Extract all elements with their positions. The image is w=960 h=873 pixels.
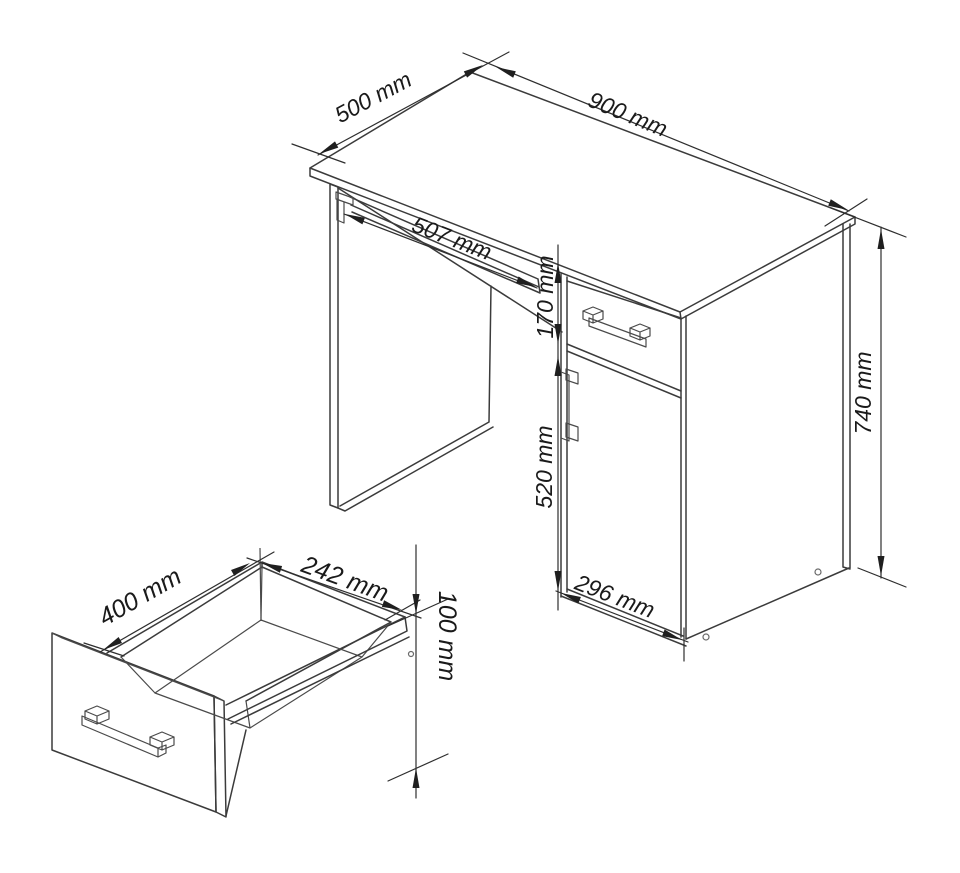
dim-label-drawer-front-height: 170 mm bbox=[532, 255, 558, 338]
left-panel-front-edge bbox=[330, 184, 338, 508]
cabinet-right-face-bottom bbox=[686, 568, 849, 639]
desk-top-surface bbox=[310, 72, 855, 312]
dim-label-door-width: 296 mm bbox=[571, 569, 659, 623]
dim-label-door-height: 520 mm bbox=[531, 425, 557, 508]
cabinet-drawer-handle bbox=[583, 307, 650, 347]
cabinet-door-handle bbox=[561, 369, 578, 441]
dimension-drawer-width: 242 mm bbox=[247, 550, 421, 620]
screw-hole-front bbox=[703, 634, 709, 640]
drawer-screw-hole bbox=[409, 652, 414, 657]
dimension-drawer-depth: 400 mm bbox=[84, 552, 274, 656]
dim-label-drawer-height: 100 mm bbox=[433, 591, 461, 681]
dimension-drawer-height: 100 mm bbox=[388, 545, 461, 798]
drawer-right-wall-band bbox=[226, 617, 409, 816]
dimension-door-height: 520 mm bbox=[531, 356, 562, 591]
desk-view bbox=[310, 72, 855, 646]
right-side-panel bbox=[843, 224, 850, 569]
cabinet-right-front-edges bbox=[681, 316, 686, 639]
cabinet-drawer-door-gap bbox=[567, 344, 681, 398]
dimension-door-width: 296 mm bbox=[556, 569, 688, 661]
dim-label-drawer-depth: 400 mm bbox=[94, 562, 186, 631]
screw-hole-back bbox=[815, 569, 821, 575]
drawer-front-panel bbox=[52, 633, 216, 812]
dim-label-desk-height: 740 mm bbox=[850, 351, 876, 434]
drawer-front-panel-side bbox=[214, 696, 226, 817]
dim-label-drawer-width: 242 mm bbox=[297, 550, 392, 608]
desk-technical-drawing: 500 mm 900 mm 507 mm 170 mm 520 mm 296 m… bbox=[0, 0, 960, 873]
technical-drawing-page: 500 mm 900 mm 507 mm 170 mm 520 mm 296 m… bbox=[0, 0, 960, 873]
